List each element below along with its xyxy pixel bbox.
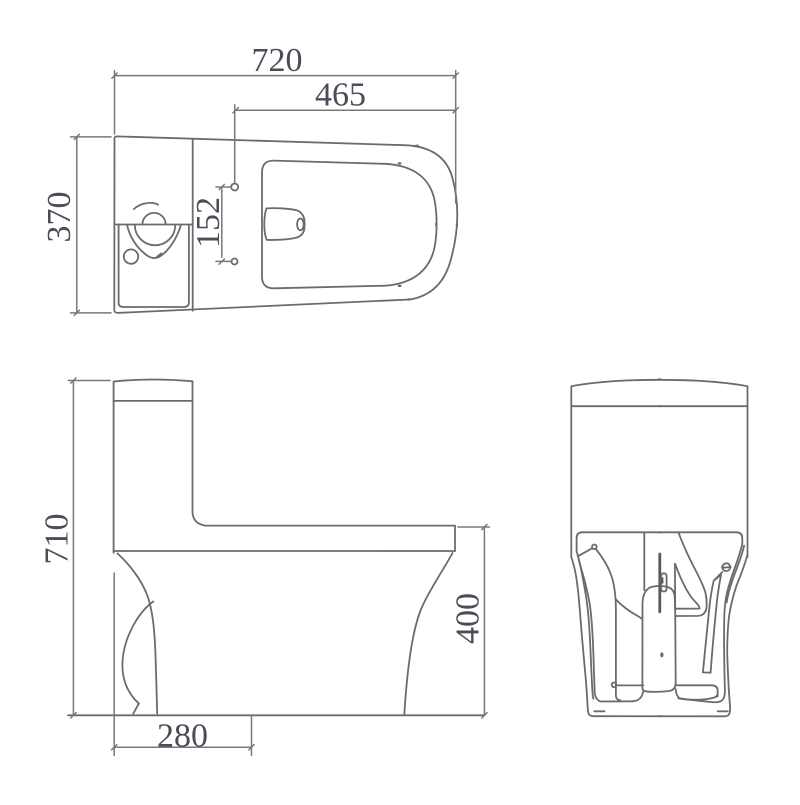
svg-text:465: 465	[315, 77, 366, 114]
svg-text:370: 370	[41, 192, 78, 243]
svg-text:152: 152	[190, 197, 227, 248]
svg-text:400: 400	[450, 593, 487, 644]
svg-text:280: 280	[157, 718, 208, 755]
svg-text:710: 710	[39, 514, 76, 565]
svg-text:720: 720	[252, 42, 303, 79]
